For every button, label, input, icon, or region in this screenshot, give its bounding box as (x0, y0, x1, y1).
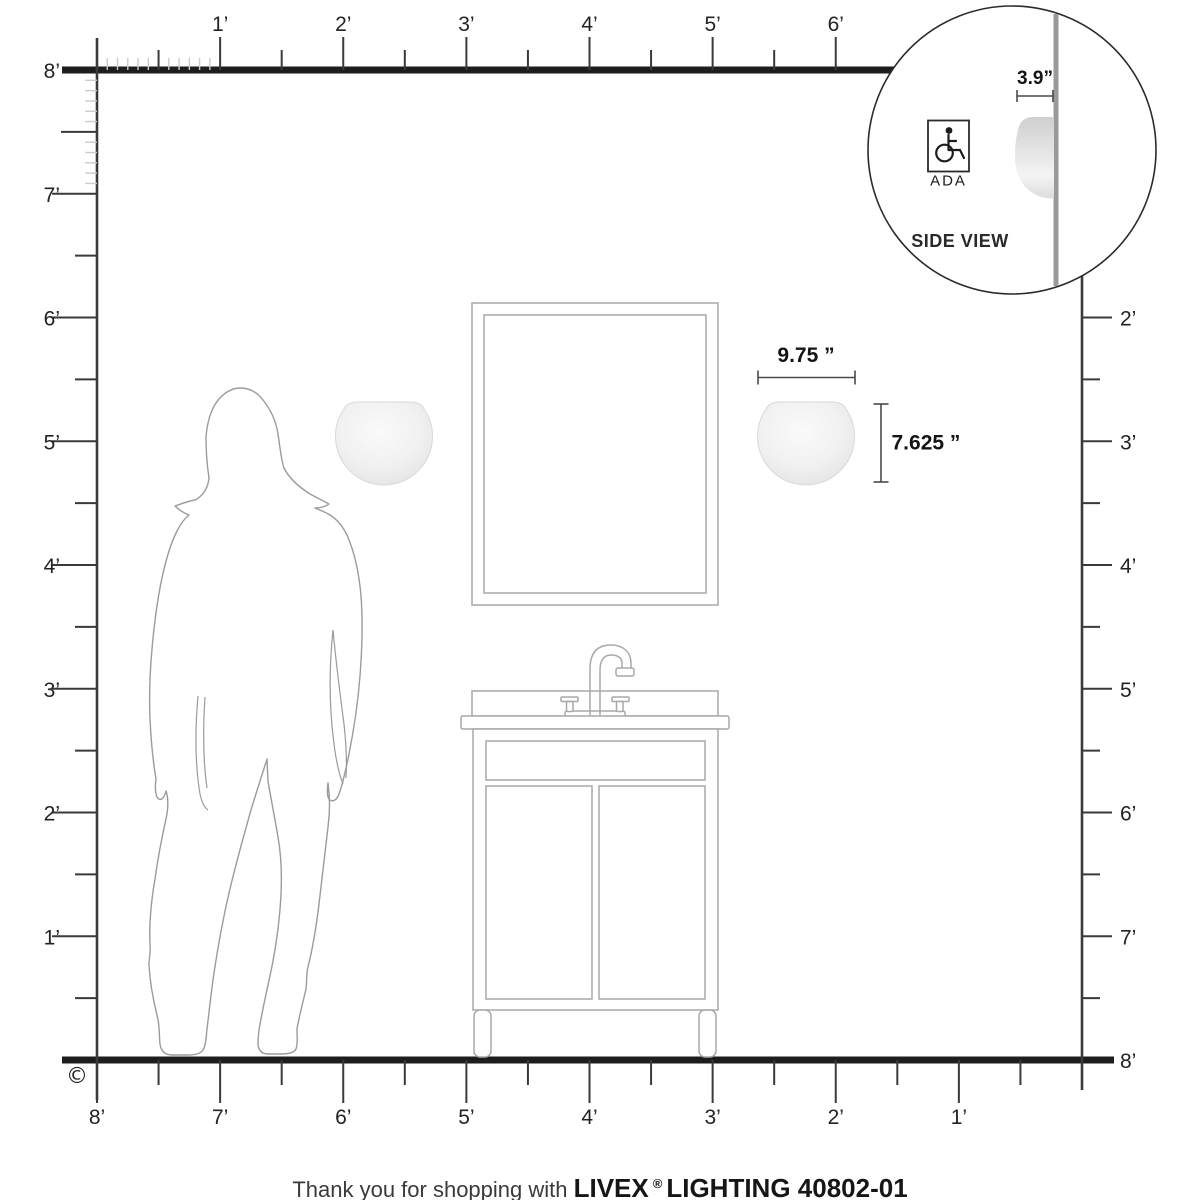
left-sconce (335, 402, 432, 485)
ruler-label: 2’ (828, 1106, 844, 1129)
female-silhouette (149, 388, 362, 1055)
bottom-ruler: 8’7’6’5’4’3’2’1’ (89, 1060, 1021, 1129)
wheelchair-icon-head (946, 127, 953, 134)
footer-text: Thank you for shopping with LIVEX ® LIGH… (292, 1173, 907, 1200)
vanity-left-door (486, 786, 592, 999)
ruler-label: 7’ (44, 184, 60, 207)
side-view-inset: 3.9” ADA SIDE VIEW (868, 6, 1156, 294)
ruler-label: 7’ (1120, 926, 1136, 949)
ruler-label: 8’ (44, 60, 60, 83)
footer-brand: LIVEX (574, 1173, 650, 1200)
ruler-label: 8’ (89, 1106, 105, 1129)
width-dimension-label: 9.75 ” (777, 344, 834, 367)
ruler-label: 3’ (704, 1106, 720, 1129)
vanity-countertop (461, 716, 729, 729)
right-sconce (758, 402, 855, 485)
ruler-label: 3’ (44, 679, 60, 702)
vanity-right-door (599, 786, 705, 999)
ruler-label: 1’ (951, 1106, 967, 1129)
footer-model-number: LIGHTING 40802-01 (666, 1173, 907, 1200)
ruler-label: 8’ (1120, 1050, 1136, 1073)
ruler-label: 4’ (581, 1106, 597, 1129)
registered-trademark-icon: ® (653, 1176, 663, 1191)
ruler-label: 2’ (1120, 308, 1136, 331)
ruler-label: 6’ (828, 13, 844, 36)
depth-dimension-label: 3.9” (1017, 68, 1053, 89)
left-ruler: 8’7’6’5’4’3’2’1’ (44, 60, 97, 998)
footer-prefix: Thank you for shopping with (292, 1177, 573, 1200)
ruler-label: 5’ (1120, 679, 1136, 702)
vanity-drawer-panel (486, 741, 705, 780)
ruler-label: 6’ (335, 1106, 351, 1129)
ruler-label: 3’ (458, 13, 474, 36)
scale-diagram: 1’2’3’4’5’6’ 8’7’6’5’4’3’2’1’ 2’3’4’5’6’… (0, 0, 1200, 1200)
height-dimension: 7.625 ” (874, 404, 961, 482)
right-ruler: 2’3’4’5’6’7’8’ (1082, 132, 1136, 1073)
vanity (461, 645, 729, 1057)
vanity-right-leg (699, 1010, 716, 1057)
ruler-label: 4’ (1120, 555, 1136, 578)
faucet-right-handle-stem (617, 702, 624, 712)
side-view-caption: SIDE VIEW (911, 231, 1009, 251)
ruler-label: 6’ (44, 308, 60, 331)
top-ruler: 1’2’3’4’5’6’ (107, 13, 844, 70)
mirror (472, 303, 718, 605)
female-silhouette-outline (149, 388, 362, 1055)
copyright-symbol: © (66, 1064, 88, 1089)
ruler-label: 3’ (1120, 431, 1136, 454)
ruler-label: 2’ (44, 803, 60, 826)
ruler-label: 2’ (335, 13, 351, 36)
ada-label: ADA (930, 173, 967, 190)
ruler-label: 5’ (44, 431, 60, 454)
ruler-label: 7’ (212, 1106, 228, 1129)
ruler-label: 5’ (458, 1106, 474, 1129)
mirror-inner-frame (484, 315, 706, 593)
ruler-label: 1’ (212, 13, 228, 36)
ada-badge: ADA (928, 121, 969, 190)
width-dimension: 9.75 ” (758, 344, 855, 385)
ruler-label: 5’ (704, 13, 720, 36)
height-dimension-label: 7.625 ” (892, 432, 961, 455)
scale-diagram-page: 1’2’3’4’5’6’ 8’7’6’5’4’3’2’1’ 2’3’4’5’6’… (0, 0, 1200, 1200)
ruler-label: 4’ (581, 13, 597, 36)
faucet-left-handle-stem (567, 702, 574, 712)
ruler-label: 1’ (44, 926, 60, 949)
vanity-left-leg (474, 1010, 491, 1057)
faucet-spout-tip (616, 668, 634, 676)
ruler-label: 6’ (1120, 803, 1136, 826)
ruler-label: 4’ (44, 555, 60, 578)
